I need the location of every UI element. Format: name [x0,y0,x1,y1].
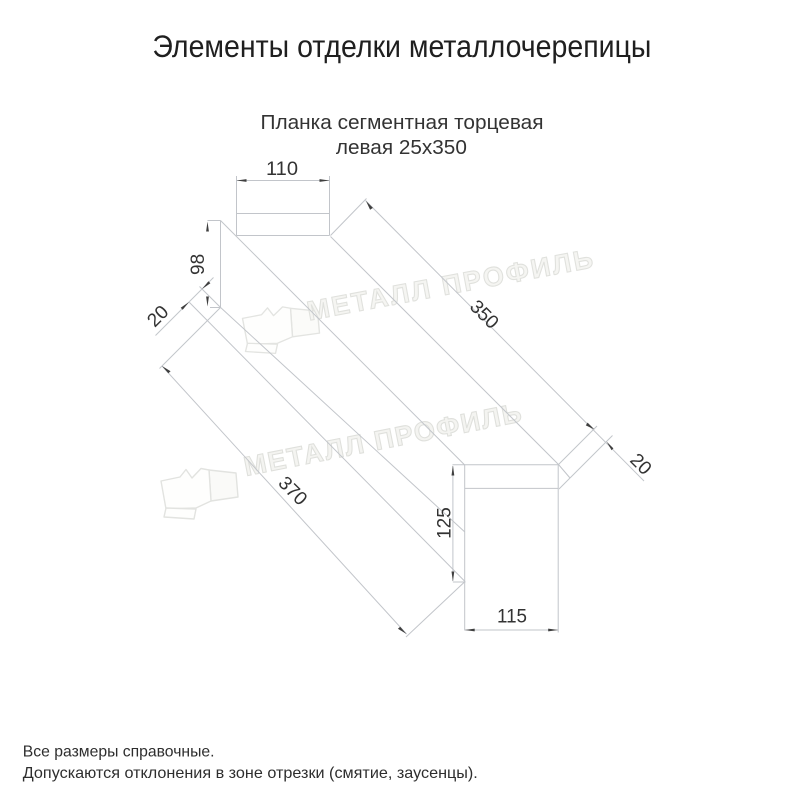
svg-text:110: 110 [266,159,298,180]
svg-text:115: 115 [497,607,527,628]
svg-text:Допускаются отклонения в зоне: Допускаются отклонения в зоне отрезки (с… [23,765,478,782]
svg-text:левая 25x350: левая 25x350 [336,137,467,159]
svg-text:Планка сегментная торцевая: Планка сегментная торцевая [261,112,544,134]
svg-text:Все размеры справочные.: Все размеры справочные. [23,744,215,761]
svg-text:125: 125 [435,507,456,539]
svg-text:Элементы отделки металлочерепи: Элементы отделки металлочерепицы [152,28,651,64]
svg-text:98: 98 [188,254,209,275]
